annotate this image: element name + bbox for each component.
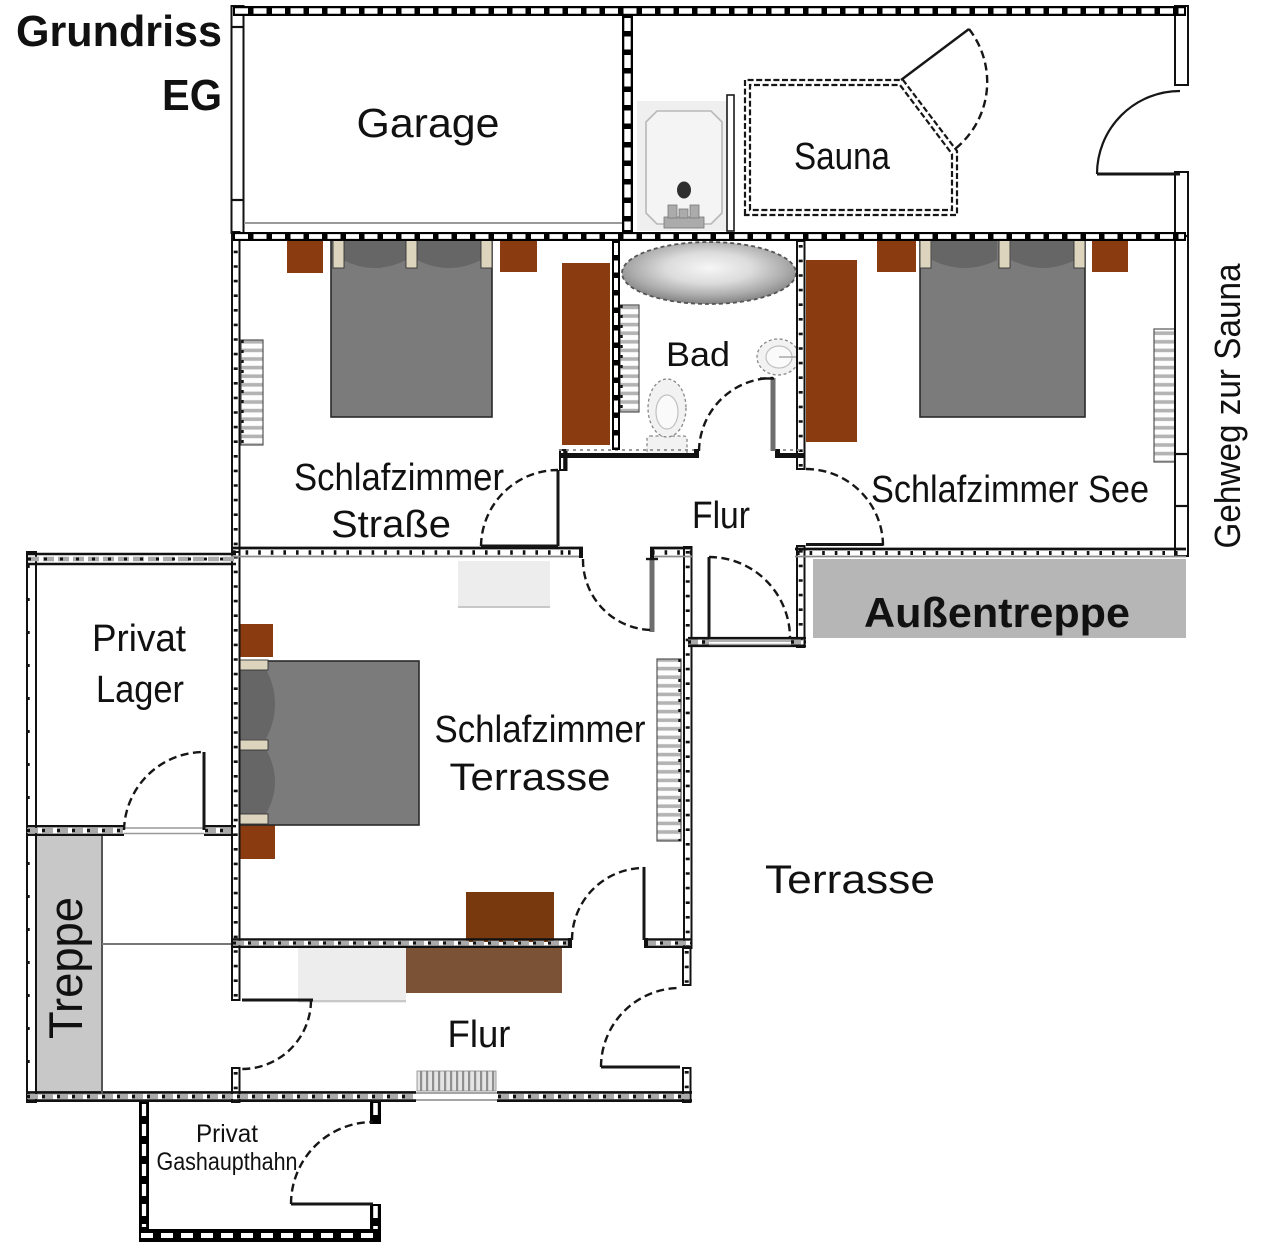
svg-text:Terrasse: Terrasse — [765, 858, 935, 902]
svg-text:Schlafzimmer: Schlafzimmer — [435, 709, 646, 751]
svg-text:Lager: Lager — [96, 669, 184, 711]
svg-text:Flur: Flur — [692, 495, 750, 537]
svg-text:Straße: Straße — [331, 504, 451, 546]
svg-text:Außentreppe: Außentreppe — [864, 589, 1130, 636]
svg-text:Privat: Privat — [196, 1120, 258, 1148]
svg-text:Terrasse: Terrasse — [450, 757, 611, 799]
svg-text:Schlafzimmer: Schlafzimmer — [294, 457, 504, 499]
svg-text:Flur: Flur — [448, 1014, 511, 1056]
svg-text:Sauna: Sauna — [794, 136, 891, 178]
svg-text:EG: EG — [162, 71, 222, 120]
svg-text:Treppe: Treppe — [39, 897, 92, 1039]
svg-text:Garage: Garage — [357, 100, 500, 146]
svg-text:Gehweg zur Sauna: Gehweg zur Sauna — [1207, 263, 1248, 549]
svg-text:Schlafzimmer See: Schlafzimmer See — [871, 469, 1149, 511]
svg-text:Grundriss: Grundriss — [16, 7, 222, 56]
svg-text:Privat: Privat — [92, 618, 186, 660]
svg-text:Gashaupthahn: Gashaupthahn — [157, 1148, 298, 1176]
svg-text:Bad: Bad — [666, 336, 730, 374]
